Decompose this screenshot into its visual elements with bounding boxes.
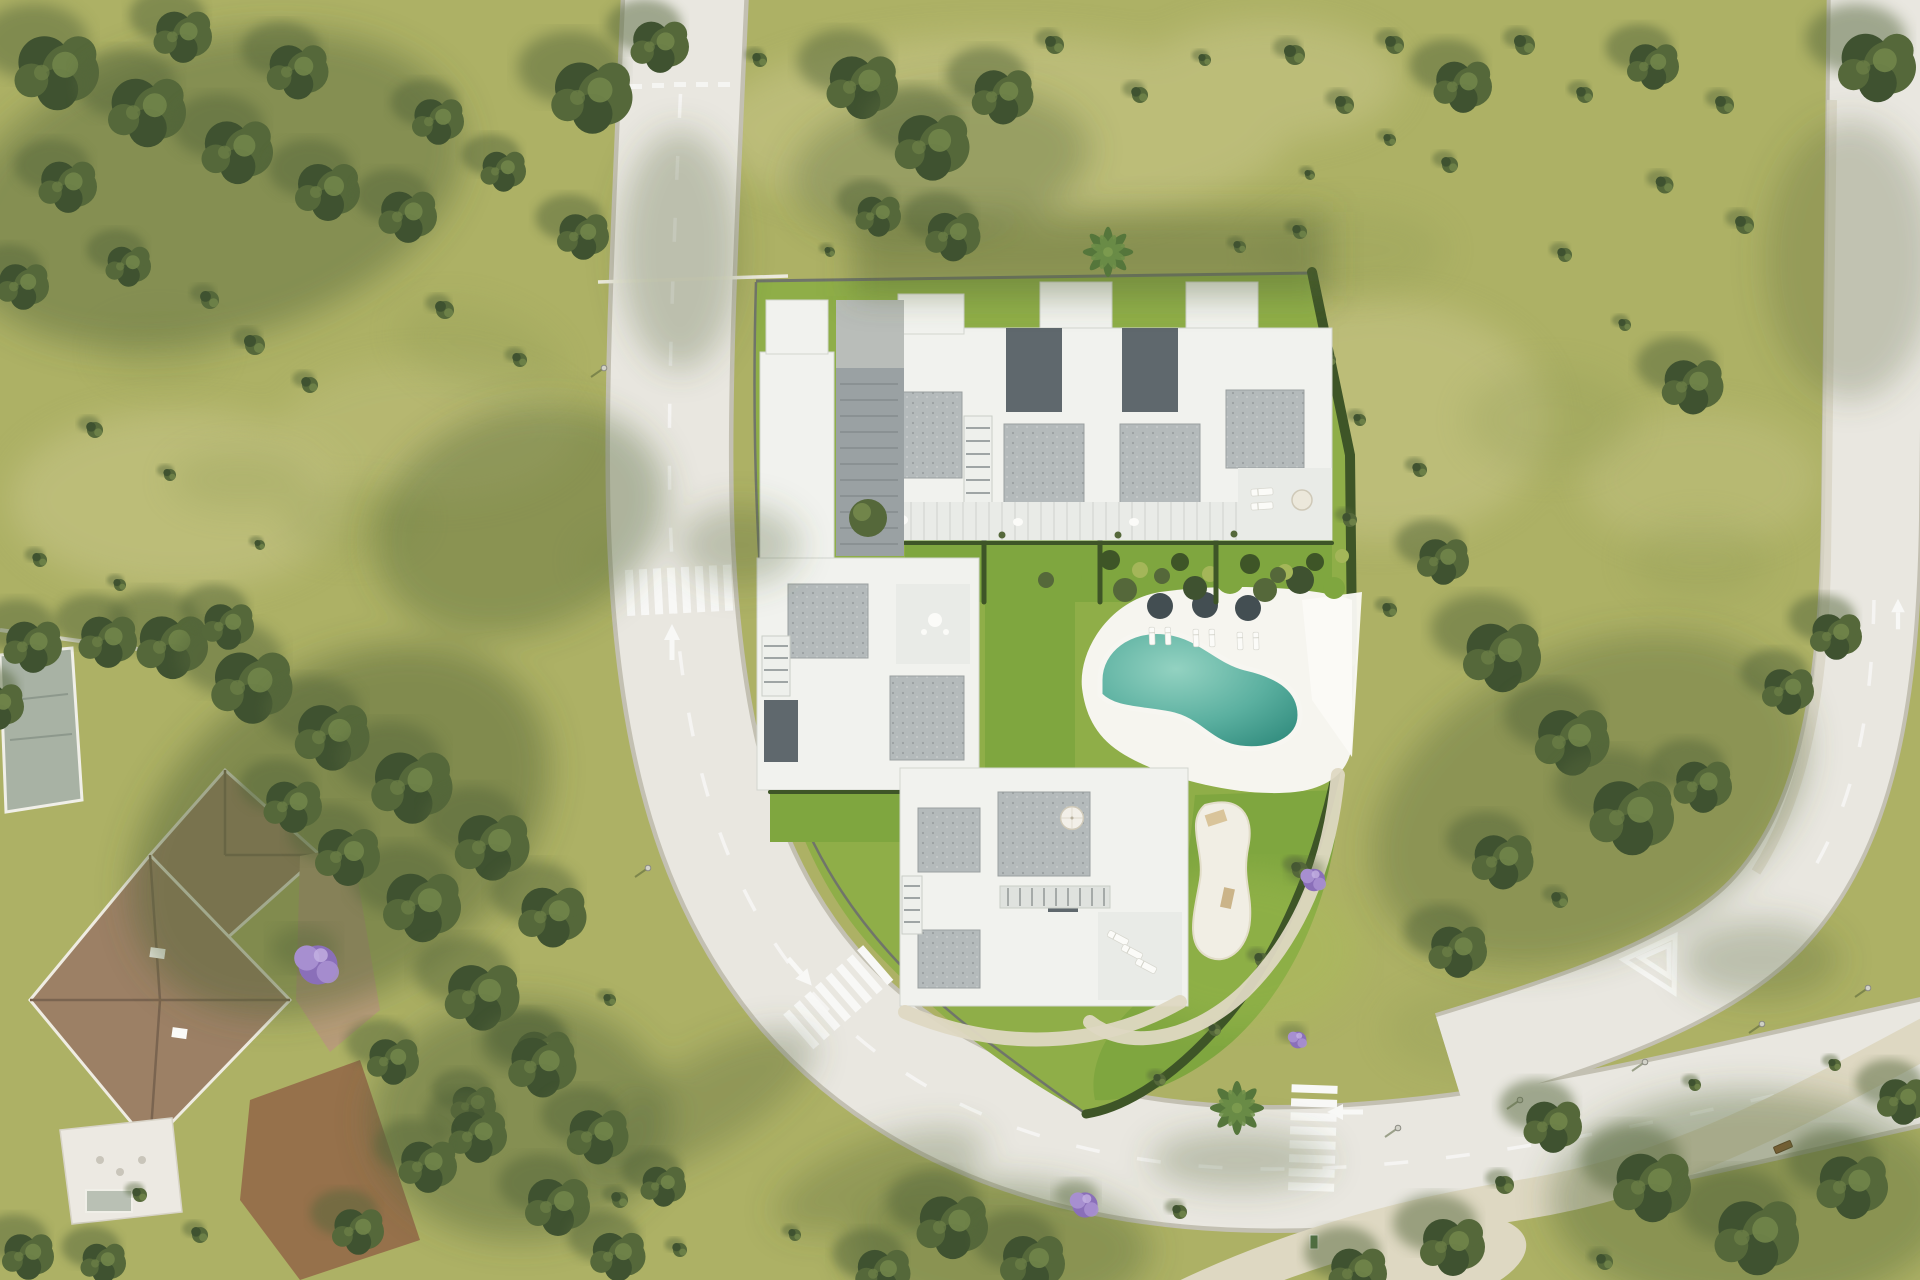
dark-roof-slab — [764, 700, 798, 762]
parasol — [1147, 593, 1173, 619]
gravel-roof — [1226, 390, 1304, 468]
central-lawn — [985, 600, 1075, 790]
block-b-north-volume — [766, 300, 828, 354]
parasol-white — [1292, 490, 1312, 510]
gravel-roof — [918, 808, 980, 872]
block-a-north-volume — [898, 294, 964, 334]
louvre-rows — [1000, 886, 1110, 908]
villa-annex-roof — [0, 648, 82, 812]
stair-louvres — [902, 876, 922, 934]
terrace-umbrella — [1061, 807, 1084, 830]
gravel-roof — [890, 676, 964, 760]
gravel-roof — [918, 930, 980, 988]
apartment-block-d — [900, 768, 1188, 1039]
dark-roof-slab — [1122, 328, 1178, 412]
courtyard-tree-highlight — [853, 503, 871, 521]
inner-driveway — [836, 300, 904, 556]
aerial-scene — [0, 0, 1920, 1280]
palm-tree — [1083, 227, 1133, 277]
pool-parasols — [1147, 592, 1261, 621]
dark-roof-slab — [1006, 328, 1062, 412]
stair-louvres — [762, 636, 790, 696]
gravel-roof — [788, 584, 868, 658]
aerial-screenshot — [0, 0, 1920, 1280]
gravel-roof — [998, 792, 1090, 876]
roof-terrace-east — [1238, 468, 1332, 540]
roof-terrace-se — [1098, 912, 1182, 1000]
sand-play-area — [1193, 802, 1250, 959]
roof-terrace — [896, 584, 970, 664]
palm-tree — [1210, 1081, 1264, 1135]
villa-chimney — [171, 1027, 187, 1039]
